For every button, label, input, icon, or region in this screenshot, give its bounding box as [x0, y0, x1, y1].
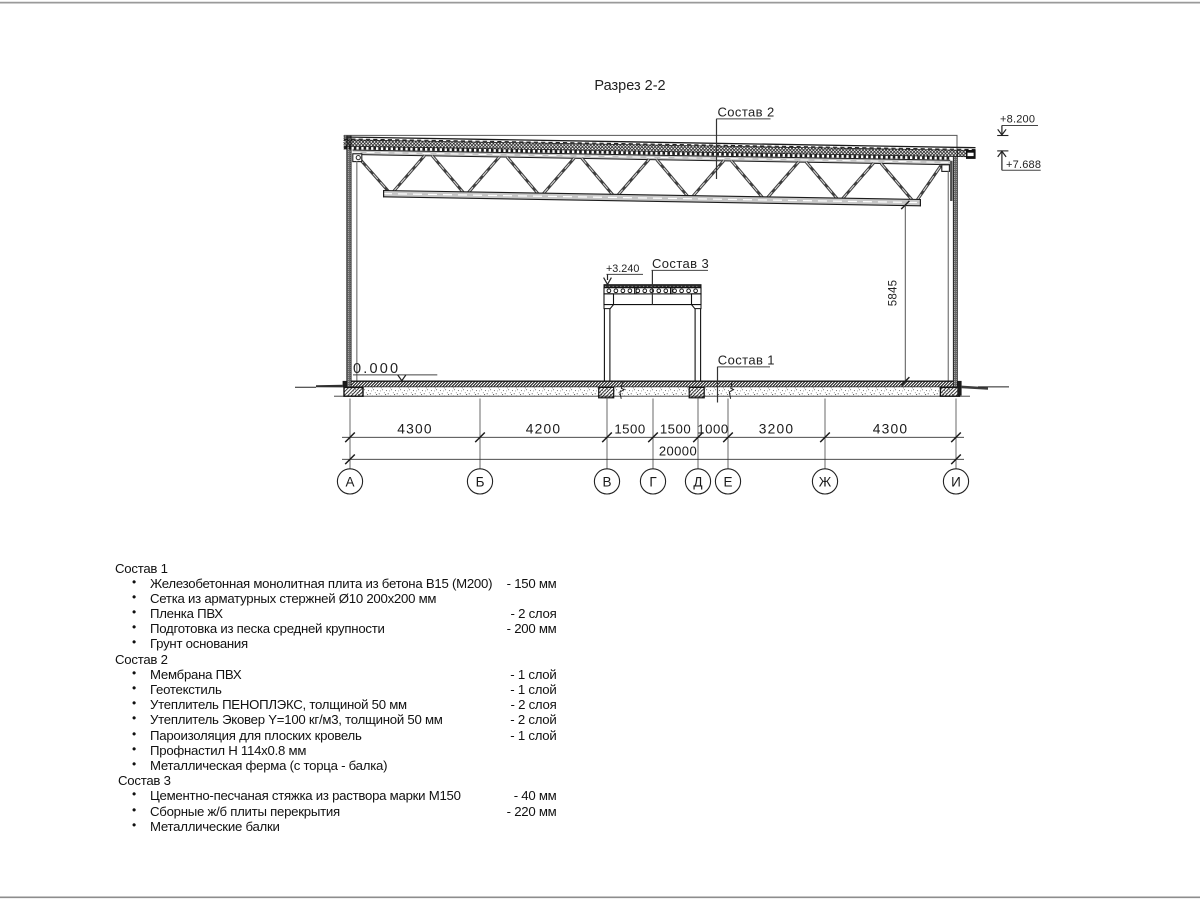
svg-text:+3.240: +3.240: [606, 263, 639, 275]
svg-text:Д: Д: [693, 474, 702, 489]
svg-text:Состав 2: Состав 2: [718, 104, 775, 119]
svg-text:1500: 1500: [660, 421, 691, 436]
svg-text:Разрез 2-2: Разрез 2-2: [594, 78, 665, 94]
svg-text:20000: 20000: [659, 443, 697, 458]
svg-text:Ж: Ж: [819, 474, 832, 489]
svg-text:Б: Б: [476, 474, 485, 489]
svg-text:1500: 1500: [614, 421, 645, 436]
svg-text:+8.200: +8.200: [1000, 114, 1035, 126]
svg-text:А: А: [345, 474, 354, 489]
svg-text:1000: 1000: [697, 421, 728, 436]
svg-text:5845: 5845: [888, 280, 900, 306]
svg-text:Е: Е: [723, 474, 732, 489]
svg-text:И: И: [951, 474, 961, 489]
svg-text:Г: Г: [649, 474, 657, 489]
svg-text:3200: 3200: [759, 421, 795, 436]
svg-text:В: В: [602, 474, 611, 489]
svg-text:4300: 4300: [397, 421, 433, 436]
svg-text:4200: 4200: [526, 421, 562, 436]
svg-text:+7.688: +7.688: [1006, 159, 1041, 171]
svg-text:Состав 1: Состав 1: [718, 353, 775, 368]
svg-text:4300: 4300: [873, 421, 909, 436]
svg-text:Состав 3: Состав 3: [652, 256, 709, 271]
